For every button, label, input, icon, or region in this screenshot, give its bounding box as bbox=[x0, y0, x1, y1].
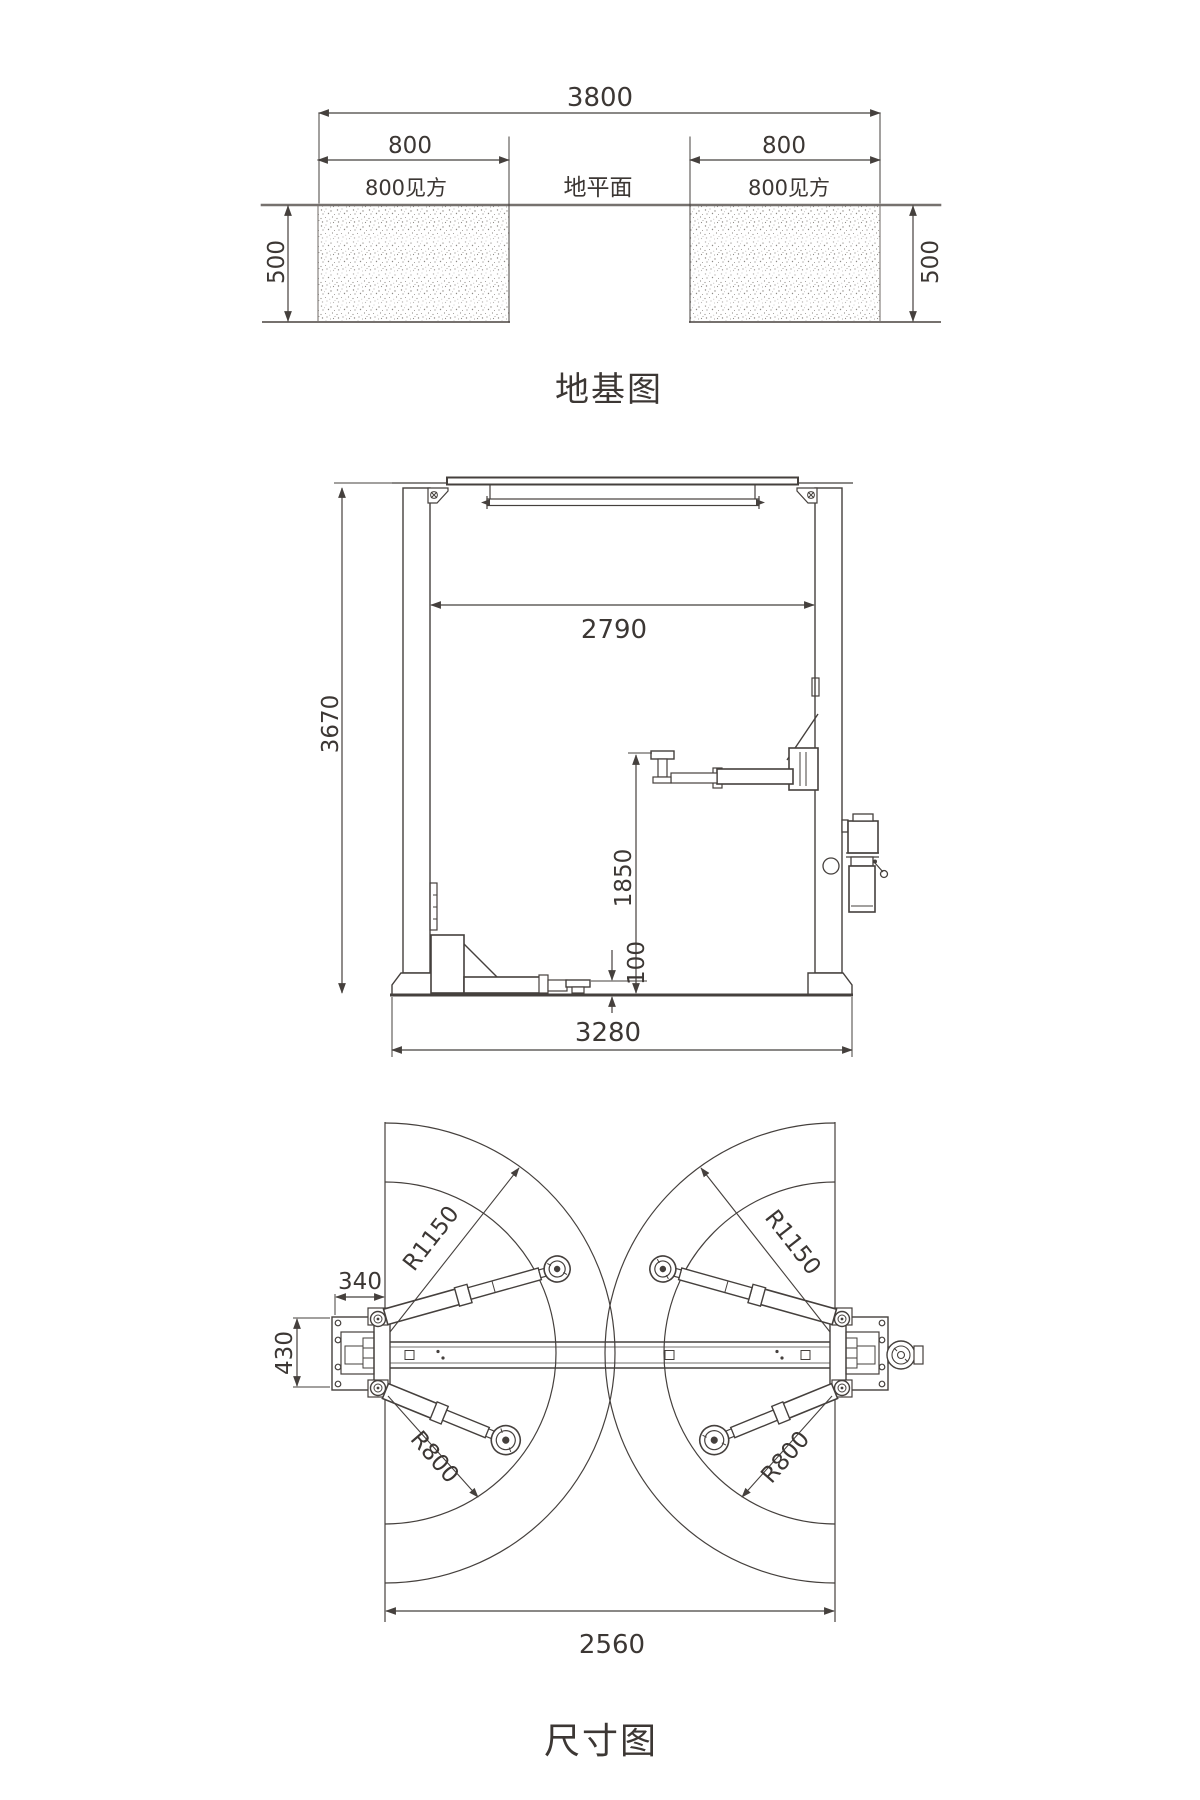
dim-base-depth-label: 430 bbox=[272, 1331, 298, 1375]
cross-beam bbox=[447, 478, 798, 485]
label-r800-right: R800 bbox=[756, 1426, 815, 1488]
elevation-diagram: 3670 2790 1850 100 3280 bbox=[318, 478, 888, 1058]
ground-plane-label: 地平面 bbox=[564, 175, 633, 201]
dim-clear-width-label: 2790 bbox=[581, 615, 647, 645]
label-r800-left: R800 bbox=[405, 1426, 464, 1488]
dim-pad-width-left-label: 800 bbox=[388, 133, 432, 159]
dim-drive-through-label: 2560 bbox=[579, 1630, 645, 1660]
dim-overall-height-label: 3670 bbox=[318, 695, 344, 754]
technical-drawing-page: 3800 800 800 800见方 800见方 地平面 500 500 地基图 bbox=[0, 0, 1200, 1800]
lift-pad-lowered bbox=[566, 980, 590, 993]
hydraulic-tank bbox=[849, 866, 875, 912]
dimension-base-depth: 430 bbox=[272, 1318, 330, 1387]
sweep-arc-inner-left bbox=[385, 1182, 556, 1524]
dim-pad-width-right-label: 800 bbox=[762, 133, 806, 159]
sweep-arc-inner-right bbox=[664, 1182, 835, 1524]
dim-pad-depth-right-label: 500 bbox=[918, 240, 944, 284]
column-base-left bbox=[392, 973, 436, 995]
dimension-drive-through: 2560 bbox=[386, 1611, 834, 1660]
plan-diagram: R1150 R1150 R800 R800 340 430 bbox=[272, 1122, 923, 1762]
swing-arm-lower-right bbox=[695, 1378, 849, 1459]
dimension-clear-width: 2790 bbox=[431, 605, 814, 645]
overhead-lamp bbox=[481, 485, 765, 509]
column-left bbox=[403, 488, 430, 973]
column-base-right bbox=[808, 973, 852, 995]
dimension-base-width: 3280 bbox=[392, 997, 852, 1057]
lamp-end-cap-right bbox=[756, 499, 765, 506]
dimension-min-pad-height: 100 bbox=[591, 941, 650, 1013]
foundation-view-title: 地基图 bbox=[555, 370, 663, 410]
power-unit bbox=[823, 814, 888, 912]
dimension-overall-height: 3670 bbox=[318, 483, 398, 993]
swing-arm-lower-left bbox=[371, 1378, 525, 1459]
two-post-lift-drawing: 3800 800 800 800见方 800见方 地平面 500 500 地基图 bbox=[0, 0, 1200, 1800]
pad-square-note-right: 800见方 bbox=[748, 176, 830, 200]
label-r1150-left: R1150 bbox=[398, 1201, 464, 1276]
lamp-end-cap-left bbox=[481, 499, 490, 506]
plan-power-unit bbox=[887, 1341, 923, 1369]
radius-leader-r1150-right: R1150 bbox=[701, 1168, 830, 1332]
column-right bbox=[815, 488, 842, 973]
lift-pad-raised bbox=[651, 751, 674, 783]
dim-base-width-label: 3280 bbox=[575, 1018, 641, 1048]
label-r1150-right: R1150 bbox=[759, 1205, 825, 1280]
column-hole bbox=[823, 858, 839, 874]
foundation-diagram: 3800 800 800 800见方 800见方 地平面 500 500 地基图 bbox=[262, 83, 944, 410]
dim-min-pad-height-label: 100 bbox=[624, 941, 650, 985]
drive-on-beam bbox=[390, 1342, 830, 1368]
radius-leader-r1150-left: R1150 bbox=[390, 1168, 519, 1332]
carriage-arm-raised bbox=[651, 678, 819, 790]
carriage-arm-lowered bbox=[430, 883, 590, 993]
dim-overall-width-label: 3800 bbox=[567, 83, 633, 113]
dimension-pad-depth-right: 500 bbox=[913, 206, 944, 321]
motor bbox=[848, 821, 878, 853]
dim-pad-depth-left-label: 500 bbox=[264, 240, 290, 284]
dimension-pad-depth-left: 500 bbox=[264, 206, 290, 321]
pad-square-note-left: 800见方 bbox=[365, 176, 447, 200]
dim-column-offset-label: 340 bbox=[338, 1269, 382, 1295]
plan-view-title: 尺寸图 bbox=[544, 1721, 658, 1762]
dim-lift-height-label: 1850 bbox=[611, 849, 637, 908]
